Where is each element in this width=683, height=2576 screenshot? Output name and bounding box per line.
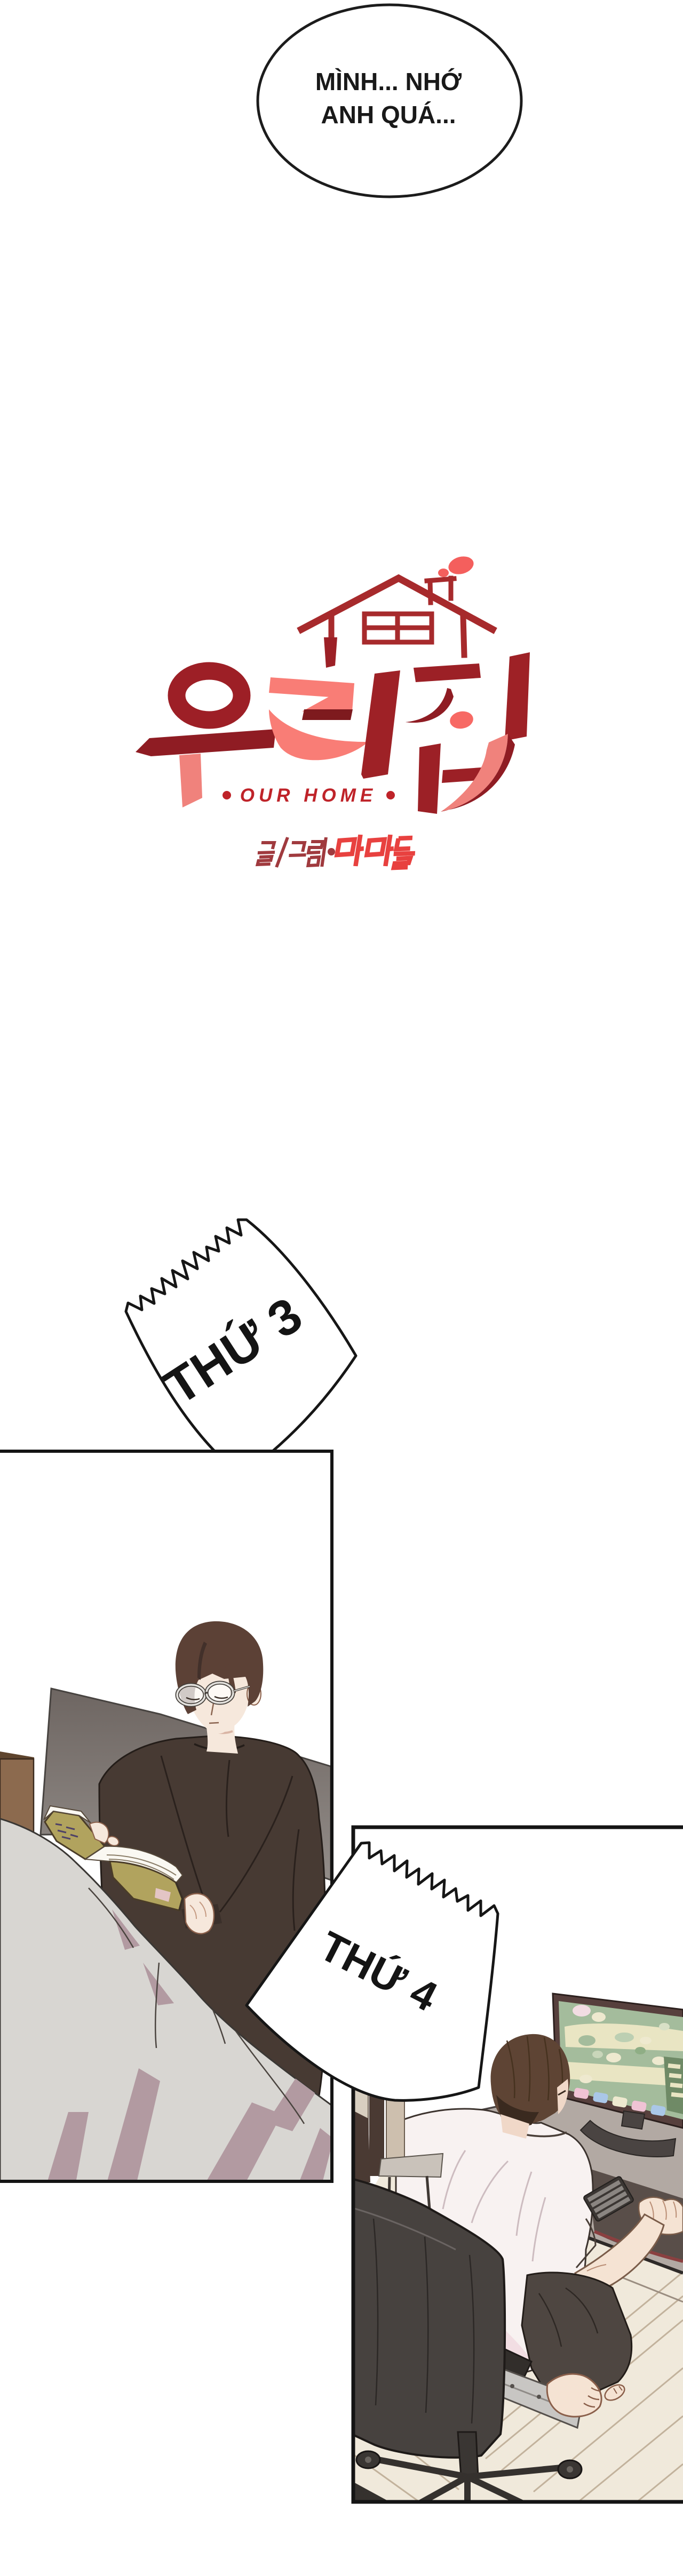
svg-text:MÌNH... NHỚ: MÌNH... NHỚ [315, 68, 462, 95]
svg-text:OUR HOME: OUR HOME [240, 785, 377, 806]
svg-text:ANH QUÁ...: ANH QUÁ... [321, 101, 456, 129]
